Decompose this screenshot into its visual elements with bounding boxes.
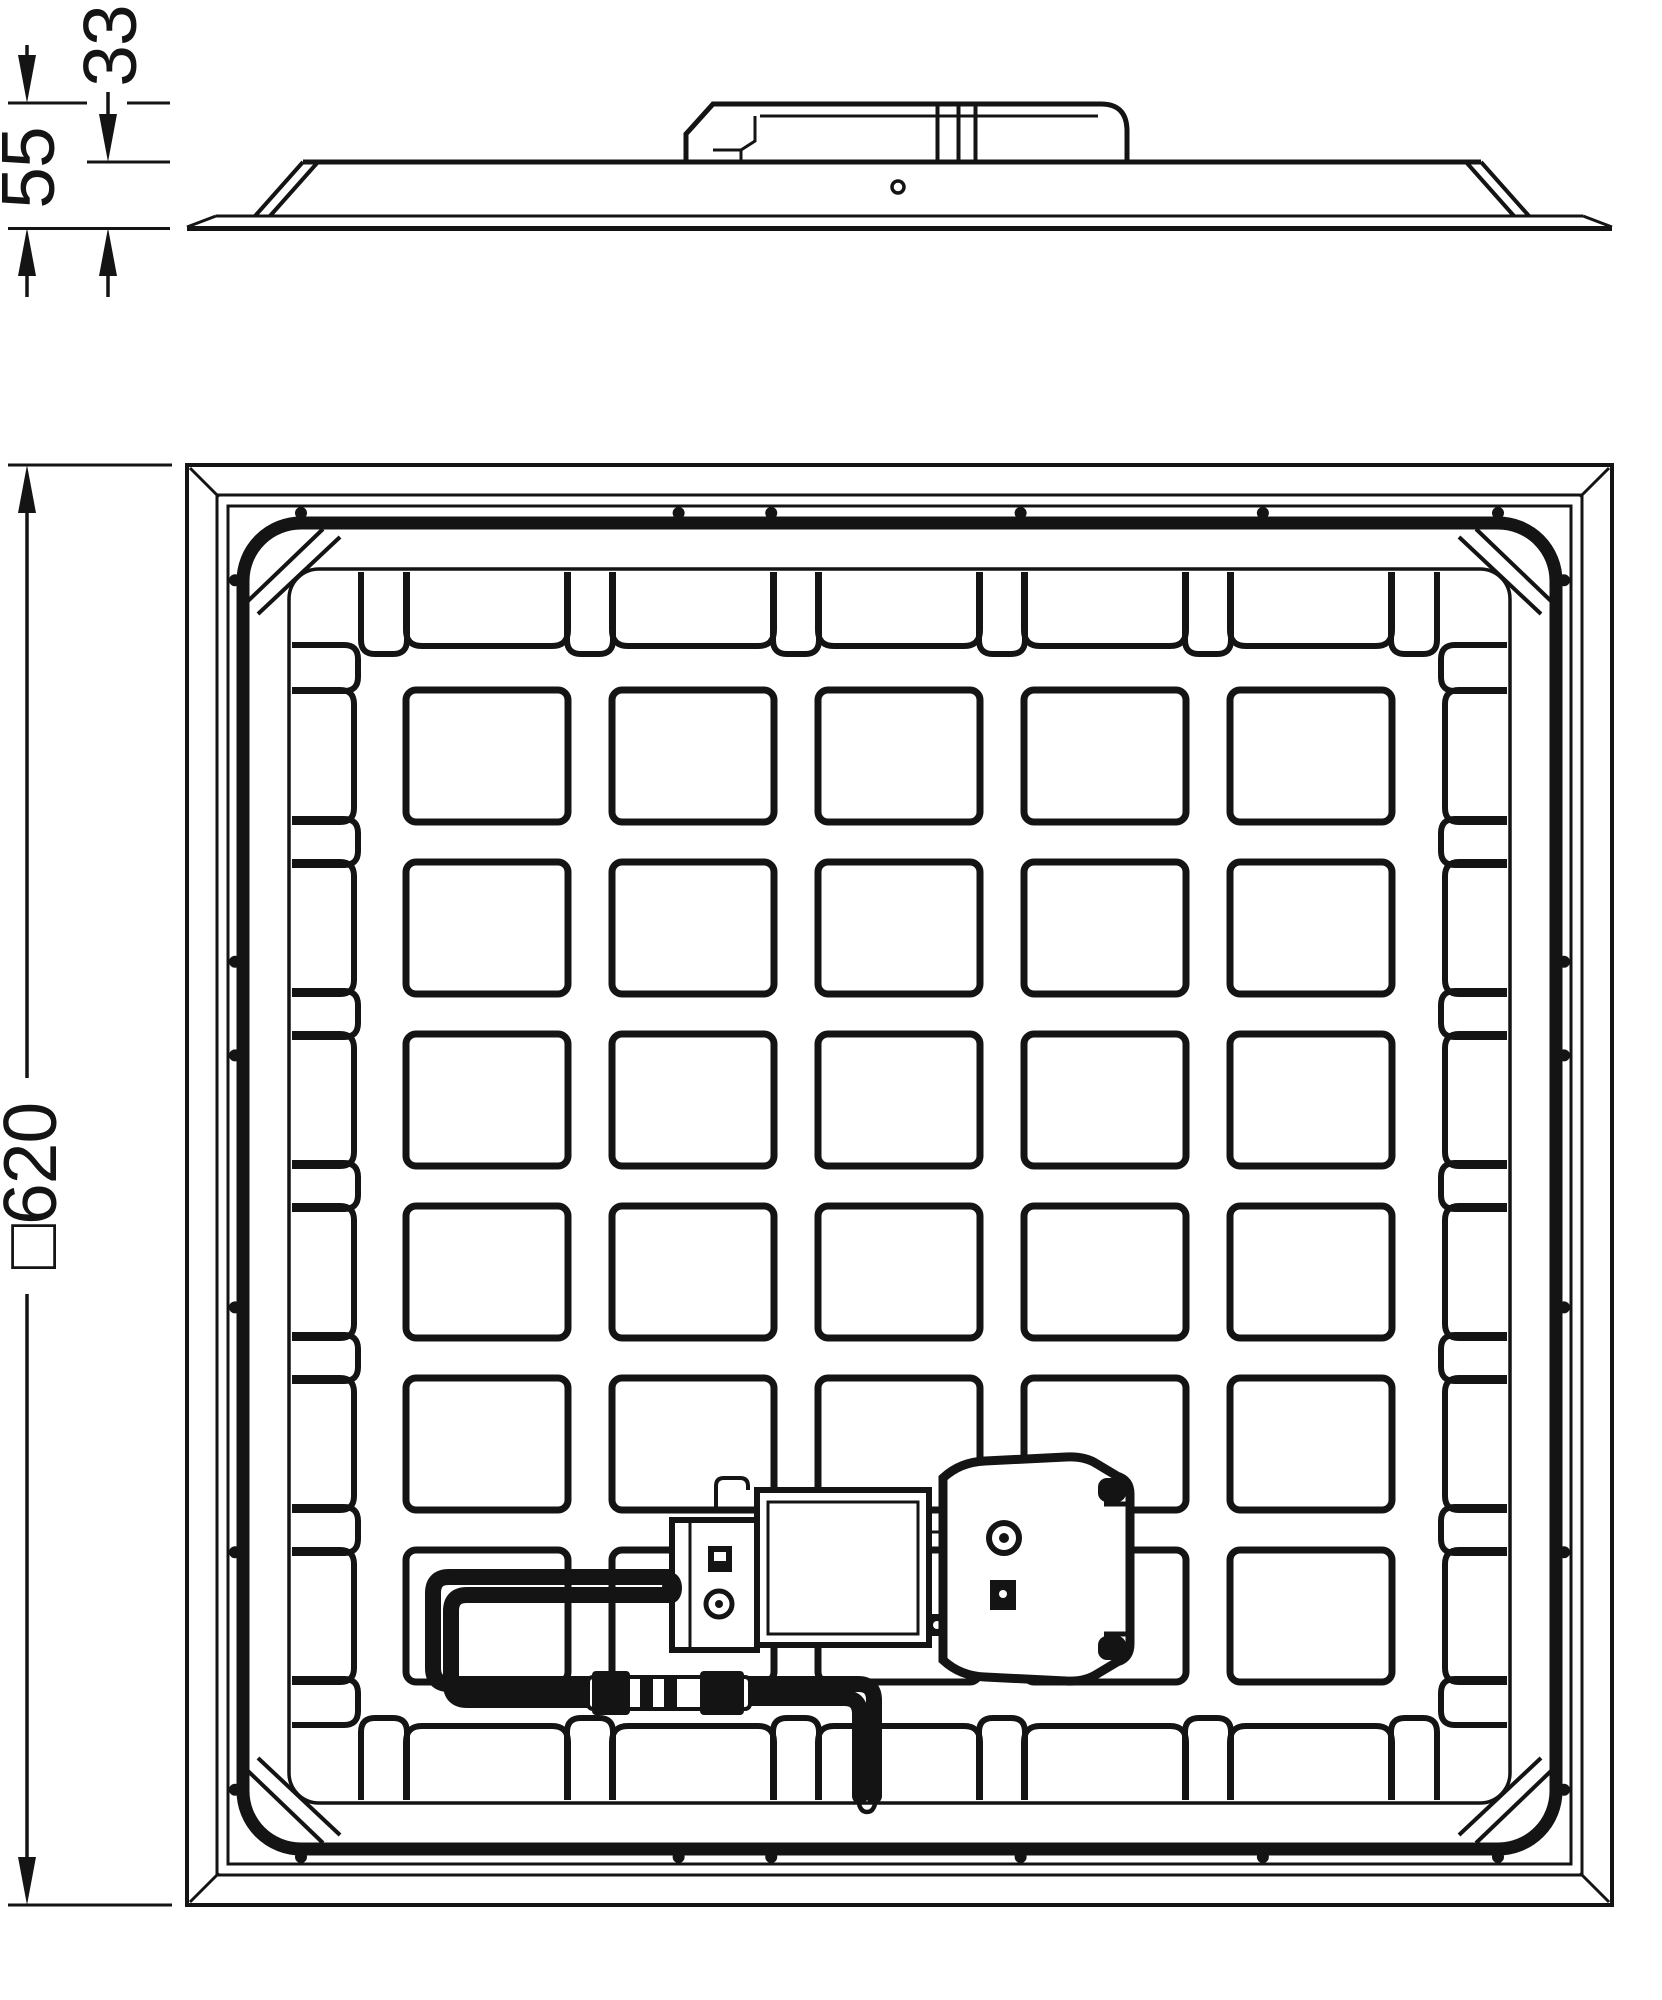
waffle-cell xyxy=(612,1378,774,1510)
channel-stub-top xyxy=(979,572,1025,654)
waffle-half-cell-left xyxy=(292,1034,354,1166)
waffle-half-cell-top xyxy=(1024,572,1186,646)
waffle-half-cell-left xyxy=(292,862,354,994)
waffle-half-cell-right xyxy=(1445,1034,1507,1166)
waffle-cell xyxy=(1230,1206,1392,1338)
channel-stub-bottom xyxy=(773,1718,819,1800)
dimension-label-55: 55 xyxy=(0,127,70,208)
channel-stub-top xyxy=(567,572,613,654)
waffle-half-cell-bottom xyxy=(612,1726,774,1800)
waffle-cell xyxy=(1024,690,1186,822)
waffle-half-cell-top xyxy=(818,572,980,646)
channel-stub-right xyxy=(1441,991,1507,1037)
gearbox-connector-step xyxy=(713,116,755,160)
waffle-half-cell-top xyxy=(1230,572,1392,646)
waffle-cell xyxy=(1024,862,1186,994)
channel-stub-left xyxy=(292,819,358,865)
waffle-half-cell-left xyxy=(292,1550,354,1682)
frame-inner-edge-1 xyxy=(217,495,1582,1875)
dimension-panel-height: 33 xyxy=(68,5,152,297)
dimension-square-size: □620 xyxy=(0,465,172,1905)
mounting-bracket xyxy=(943,1457,1130,1681)
channel-stub-left xyxy=(292,1335,358,1381)
waffle-half-cell-top xyxy=(612,572,774,646)
waffle-cell xyxy=(612,862,774,994)
waffle-cell xyxy=(1230,1034,1392,1166)
channel-stub-left xyxy=(292,1163,358,1209)
channel-stub-right xyxy=(1441,1679,1507,1725)
waffle-half-cell-left xyxy=(292,690,354,822)
channel-stub-left xyxy=(292,645,358,691)
wire-connector xyxy=(588,1671,750,1715)
wire-drop-inner xyxy=(748,1698,860,1794)
bracket-hook xyxy=(1098,1478,1126,1502)
waffle-half-cell-right xyxy=(1445,1206,1507,1338)
gearbox-divider-lines xyxy=(938,106,976,160)
luminaire-technical-drawing: 55 33 xyxy=(0,0,1662,2000)
channel-stub-left xyxy=(292,1507,358,1553)
waffle-cell xyxy=(406,1034,568,1166)
flange-end-caps xyxy=(187,216,1612,227)
channel-stub-bottom xyxy=(567,1718,613,1800)
channel-stub-right xyxy=(1441,1163,1507,1209)
waffle-cell xyxy=(612,690,774,822)
channel-stub-left xyxy=(292,1679,358,1725)
waffle-half-cell-bottom xyxy=(1230,1726,1392,1800)
waffle-cell xyxy=(1230,1550,1392,1682)
suspension-hole xyxy=(892,181,904,193)
channel-stub-bottom xyxy=(1185,1718,1231,1800)
channel-stub-top xyxy=(1391,572,1437,654)
channel-stub-right xyxy=(1441,819,1507,865)
waffle-cell xyxy=(406,690,568,822)
arrow-up-icon xyxy=(18,465,36,513)
channel-stub-right xyxy=(1441,1335,1507,1381)
channel-stub-left xyxy=(292,991,358,1037)
channel-stub-bottom xyxy=(979,1718,1025,1800)
arrow-up-icon xyxy=(18,228,36,276)
channel-stub-right xyxy=(1441,1507,1507,1553)
frame-corner-miters xyxy=(190,468,1609,1902)
gearbox-outline xyxy=(686,104,1127,160)
drawing-canvas: 55 33 xyxy=(0,0,1662,2000)
waffle-cell xyxy=(612,1206,774,1338)
arrow-up-icon xyxy=(99,228,117,276)
waffle-cell xyxy=(818,1034,980,1166)
channel-stub-top xyxy=(361,572,407,654)
rear-view xyxy=(187,465,1612,1905)
channel-stub-top xyxy=(773,572,819,654)
waffle-cell xyxy=(406,1378,568,1510)
arrow-down-icon xyxy=(18,1857,36,1905)
waffle-half-cell-right xyxy=(1445,1550,1507,1682)
dimension-label-620: □620 xyxy=(0,1103,72,1269)
cable-grommet xyxy=(662,1573,682,1603)
waffle-half-cell-bottom xyxy=(1024,1726,1186,1800)
connector-rib xyxy=(664,1675,677,1711)
waffle-cell xyxy=(406,1206,568,1338)
channel-stub-right xyxy=(1441,645,1507,691)
waffle-half-cell-top xyxy=(406,572,568,646)
waffle-cell xyxy=(1024,1206,1186,1338)
channel-stub-bottom xyxy=(1391,1718,1437,1800)
waffle-cell xyxy=(1230,1378,1392,1510)
waffle-cell xyxy=(1230,690,1392,822)
bracket-hook xyxy=(1098,1636,1126,1660)
waffle-half-cell-left xyxy=(292,1206,354,1338)
arrow-down-icon xyxy=(18,55,36,103)
waffle-half-cell-bottom xyxy=(818,1726,980,1800)
channel-stub-top xyxy=(1185,572,1231,654)
frame-outer-edge xyxy=(187,465,1612,1905)
waffle-half-cell-right xyxy=(1445,1378,1507,1510)
connector-end-block xyxy=(700,1671,744,1715)
waffle-cell xyxy=(818,862,980,994)
arrow-down-icon xyxy=(99,114,117,162)
terminal-box xyxy=(662,1520,757,1650)
waffle-half-cell-left xyxy=(292,1378,354,1510)
waffle-half-cell-bottom xyxy=(406,1726,568,1800)
waffle-half-cell-right xyxy=(1445,690,1507,822)
waffle-cell xyxy=(406,862,568,994)
waffle-cell xyxy=(1230,862,1392,994)
channel-stub-bottom xyxy=(361,1718,407,1800)
waffle-cell xyxy=(818,1206,980,1338)
waffle-cell xyxy=(1024,1034,1186,1166)
side-view-gearbox xyxy=(686,104,1127,160)
waffle-cell xyxy=(818,690,980,822)
side-view xyxy=(187,104,1612,229)
dimension-label-33: 33 xyxy=(68,5,152,86)
waffle-half-cell-right xyxy=(1445,862,1507,994)
connector-rib xyxy=(640,1675,653,1711)
waffle-cell xyxy=(612,1034,774,1166)
connector-end-block xyxy=(592,1671,630,1715)
